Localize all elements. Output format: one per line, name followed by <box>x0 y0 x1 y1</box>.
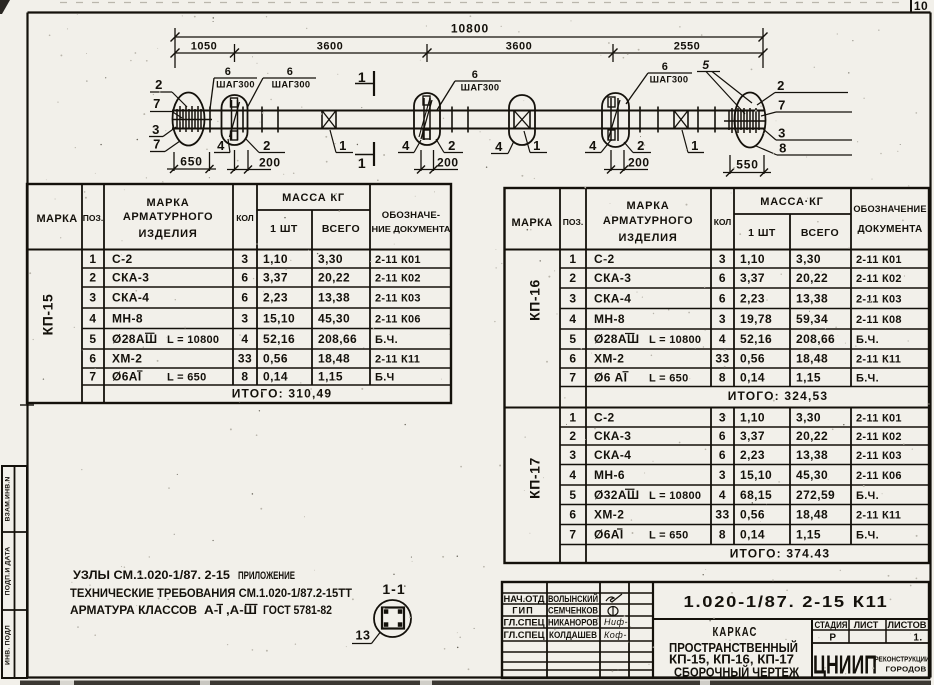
svg-text:ОБОЗНАЧЕ-: ОБОЗНАЧЕ- <box>382 210 441 221</box>
svg-text:0,56: 0,56 <box>740 352 765 366</box>
svg-text:1 ШТ: 1 ШТ <box>748 227 776 239</box>
svg-text:3600: 3600 <box>506 41 532 53</box>
svg-text:13,38: 13,38 <box>796 448 828 462</box>
svg-text:2: 2 <box>569 271 576 285</box>
svg-text:2-11 К11: 2-11 К11 <box>856 510 901 522</box>
svg-text:ШАГ300: ШАГ300 <box>461 83 500 93</box>
svg-text:1: 1 <box>89 252 96 266</box>
svg-text:ИТОГО: 324,53: ИТОГО: 324,53 <box>728 389 829 403</box>
svg-text:7: 7 <box>569 370 576 384</box>
svg-text:ИТОГО: 374.43: ИТОГО: 374.43 <box>730 547 831 561</box>
svg-text:200: 200 <box>437 156 459 170</box>
svg-text:ПОЗ.: ПОЗ. <box>83 213 103 223</box>
svg-text:1-1: 1-1 <box>382 581 405 597</box>
svg-text:СЕМЧЕНКОВ: СЕМЧЕНКОВ <box>548 606 598 616</box>
svg-text:СКА-3: СКА-3 <box>594 429 631 443</box>
svg-text:L = 10800: L = 10800 <box>167 334 219 346</box>
svg-text:2-11 К03: 2-11 К03 <box>856 293 902 305</box>
svg-text:10800: 10800 <box>451 22 489 36</box>
svg-text:68,15: 68,15 <box>740 488 772 502</box>
svg-text:0,56: 0,56 <box>740 508 765 522</box>
svg-text:2: 2 <box>263 138 271 153</box>
svg-text:45,30: 45,30 <box>796 468 828 482</box>
svg-text:3: 3 <box>719 410 726 424</box>
svg-text:3: 3 <box>152 122 160 137</box>
svg-text:20,22: 20,22 <box>796 271 828 285</box>
svg-text:ЦНИИП: ЦНИИП <box>813 650 877 680</box>
svg-text:ГЛ.СПЕЦ: ГЛ.СПЕЦ <box>504 618 545 628</box>
svg-text:МН-8: МН-8 <box>594 312 625 326</box>
svg-text:L = 650: L = 650 <box>167 372 207 384</box>
svg-text:КП-17: КП-17 <box>527 457 543 499</box>
svg-text:6: 6 <box>569 352 576 366</box>
svg-text:1,10: 1,10 <box>263 252 288 266</box>
svg-text:С-2: С-2 <box>594 252 615 266</box>
svg-text:59,34: 59,34 <box>796 312 828 326</box>
svg-text:7: 7 <box>89 370 96 384</box>
svg-text:6: 6 <box>719 291 726 305</box>
svg-text:ГЛ.СПЕЦ: ГЛ.СПЕЦ <box>504 630 545 640</box>
svg-text:Коф-: Коф- <box>604 630 627 640</box>
svg-text:2-11 К06: 2-11 К06 <box>856 470 902 482</box>
svg-text:1: 1 <box>691 138 699 153</box>
svg-text:3: 3 <box>89 291 96 305</box>
svg-text:Р: Р <box>829 633 836 644</box>
svg-text:ВСЕГО: ВСЕГО <box>322 223 360 235</box>
svg-text:1050: 1050 <box>191 41 217 53</box>
svg-text:1: 1 <box>569 410 576 424</box>
svg-text:Б.Ч.: Б.Ч. <box>856 490 879 502</box>
svg-text:2-11 К03: 2-11 К03 <box>375 293 421 305</box>
svg-text:КОЛДАШЕВ: КОЛДАШЕВ <box>549 630 597 640</box>
svg-text:СКА-4: СКА-4 <box>594 291 631 305</box>
svg-text:8: 8 <box>241 370 248 384</box>
svg-text:3: 3 <box>719 312 726 326</box>
svg-text:272,59: 272,59 <box>796 488 835 502</box>
svg-text:МАССА·КГ: МАССА·КГ <box>760 196 823 208</box>
svg-text:6: 6 <box>569 508 576 522</box>
svg-text:1: 1 <box>358 69 366 85</box>
svg-text:2-11 К01: 2-11 К01 <box>375 254 421 266</box>
svg-text:1.020-1/87. 2-15 К11: 1.020-1/87. 2-15 К11 <box>684 594 889 611</box>
svg-text:5: 5 <box>89 332 96 346</box>
svg-text:L = 650: L = 650 <box>649 372 689 384</box>
svg-text:4: 4 <box>495 139 503 154</box>
svg-text:ИНВ. ПОДЛ: ИНВ. ПОДЛ <box>5 625 12 665</box>
svg-text:3,37: 3,37 <box>740 429 765 443</box>
svg-text:2: 2 <box>155 77 163 92</box>
svg-text:2,23: 2,23 <box>740 448 765 462</box>
svg-text:200: 200 <box>628 156 650 170</box>
svg-text:ПОЗ.: ПОЗ. <box>563 217 583 227</box>
svg-text:4: 4 <box>719 488 726 502</box>
svg-text:3: 3 <box>778 126 786 141</box>
svg-text:2-11 К02: 2-11 К02 <box>856 431 902 443</box>
svg-text:МН-6: МН-6 <box>594 468 625 482</box>
svg-text:СБОРОЧНЫЙ ЧЕРТЕЖ: СБОРОЧНЫЙ ЧЕРТЕЖ <box>674 665 799 680</box>
svg-text:6: 6 <box>241 291 248 305</box>
svg-text:ТЕХНИЧЕСКИЕ ТРЕБОВАНИЯ СМ.1.02: ТЕХНИЧЕСКИЕ ТРЕБОВАНИЯ СМ.1.020-1/87.2-1… <box>70 586 353 600</box>
svg-text:1,15: 1,15 <box>318 370 343 384</box>
svg-text:19,78: 19,78 <box>740 312 772 326</box>
svg-text:АРМАТУРНОГО: АРМАТУРНОГО <box>603 215 693 227</box>
svg-text:15,10: 15,10 <box>263 311 295 325</box>
svg-text:52,16: 52,16 <box>740 332 772 346</box>
svg-text:КАРКАС: КАРКАС <box>713 624 758 639</box>
svg-text:18,48: 18,48 <box>796 508 828 522</box>
svg-text:20,22: 20,22 <box>318 271 350 285</box>
svg-text:ХМ-2: ХМ-2 <box>594 352 624 366</box>
svg-text:1: 1 <box>339 138 347 153</box>
svg-text:МАРКА: МАРКА <box>626 200 669 212</box>
svg-text:ХМ-2: ХМ-2 <box>112 352 142 366</box>
svg-text:РЕКОНСТРУКЦИИ: РЕКОНСТРУКЦИИ <box>875 657 930 664</box>
svg-text:ЛИСТОВ: ЛИСТОВ <box>888 620 928 630</box>
svg-text:2-11 К03: 2-11 К03 <box>856 450 902 462</box>
svg-text:2-11 К01: 2-11 К01 <box>856 254 902 266</box>
svg-text:L = 10800: L = 10800 <box>649 490 701 502</box>
svg-text:13,38: 13,38 <box>318 291 350 305</box>
svg-text:2-11 К11: 2-11 К11 <box>375 354 420 366</box>
svg-text:1: 1 <box>533 138 541 153</box>
svg-text:ГИП: ГИП <box>512 606 533 616</box>
svg-text:6: 6 <box>241 271 248 285</box>
svg-text:1,10: 1,10 <box>740 252 765 266</box>
svg-text:1.: 1. <box>913 633 922 644</box>
svg-text:2: 2 <box>89 271 96 285</box>
svg-text:3600: 3600 <box>317 41 343 53</box>
svg-text:6: 6 <box>225 66 232 78</box>
svg-text:2-11 К06: 2-11 К06 <box>375 313 421 325</box>
svg-text:200: 200 <box>259 156 281 170</box>
svg-text:ПОДП.И ДАТА: ПОДП.И ДАТА <box>5 547 12 596</box>
svg-text:1 ШТ: 1 ШТ <box>270 223 298 235</box>
svg-text:0,14: 0,14 <box>263 370 288 384</box>
svg-text:2-11 К08: 2-11 К08 <box>856 314 902 326</box>
svg-text:КП-15: КП-15 <box>40 294 56 336</box>
svg-text:Б.Ч.: Б.Ч. <box>375 334 398 346</box>
svg-text:ИЗДЕЛИЯ: ИЗДЕЛИЯ <box>618 232 677 244</box>
svg-text:ШАГ300: ШАГ300 <box>650 75 689 85</box>
svg-text:Ниф-: Ниф- <box>604 617 628 627</box>
svg-text:НИКАНОРОВ: НИКАНОРОВ <box>548 618 598 628</box>
svg-text:Б.Ч.: Б.Ч. <box>856 530 879 542</box>
svg-text:18,48: 18,48 <box>318 352 350 366</box>
svg-text:СКА-3: СКА-3 <box>112 271 149 285</box>
svg-text:2: 2 <box>569 429 576 443</box>
svg-text:ШАГ300: ШАГ300 <box>272 80 311 90</box>
svg-text:4: 4 <box>569 468 576 482</box>
svg-text:НИЕ ДОКУМЕНТА: НИЕ ДОКУМЕНТА <box>372 224 451 234</box>
svg-text:С-2: С-2 <box>112 252 133 266</box>
svg-text:ИЗДЕЛИЯ: ИЗДЕЛИЯ <box>138 228 197 240</box>
svg-text:Б.Ч.: Б.Ч. <box>856 334 879 346</box>
svg-text:15,10: 15,10 <box>740 468 772 482</box>
svg-text:1: 1 <box>569 252 576 266</box>
svg-text:ШАГ300: ШАГ300 <box>216 80 255 90</box>
svg-text:3,37: 3,37 <box>263 271 288 285</box>
svg-text:2-11 К02: 2-11 К02 <box>856 273 902 285</box>
svg-text:4: 4 <box>719 332 726 346</box>
svg-text:208,66: 208,66 <box>796 332 835 346</box>
svg-text:1,15: 1,15 <box>796 528 821 542</box>
svg-text:СТАДИЯ: СТАДИЯ <box>815 620 848 630</box>
svg-text:3,37: 3,37 <box>740 271 765 285</box>
svg-text:7: 7 <box>569 528 576 542</box>
svg-text:7: 7 <box>153 137 161 152</box>
svg-text:ДОКУМЕНТА: ДОКУМЕНТА <box>857 224 922 235</box>
svg-text:13,38: 13,38 <box>796 291 828 305</box>
svg-text:1: 1 <box>358 155 366 171</box>
svg-text:7: 7 <box>153 96 161 111</box>
svg-text:8: 8 <box>719 528 726 542</box>
svg-text:4: 4 <box>569 312 576 326</box>
svg-text:СКА-4: СКА-4 <box>594 448 631 462</box>
svg-text:ВОЛЫНСКИЙ: ВОЛЫНСКИЙ <box>548 593 598 604</box>
svg-text:2: 2 <box>777 78 785 93</box>
svg-text:33: 33 <box>715 508 729 522</box>
svg-text:3: 3 <box>241 252 248 266</box>
svg-text:4: 4 <box>89 311 96 325</box>
svg-text:3,30: 3,30 <box>318 252 343 266</box>
svg-text:2-11 К11: 2-11 К11 <box>856 354 901 366</box>
svg-text:ИТОГО: 310,49: ИТОГО: 310,49 <box>232 387 333 401</box>
svg-text:4: 4 <box>217 138 225 153</box>
svg-text:5: 5 <box>702 58 709 72</box>
svg-text:3: 3 <box>719 468 726 482</box>
svg-text:АРМАТУРА КЛАССОВ: АРМАТУРА КЛАССОВ <box>70 603 197 617</box>
svg-text:ПРИЛОЖЕНИЕ: ПРИЛОЖЕНИЕ <box>238 570 295 582</box>
svg-text:L = 650: L = 650 <box>649 530 689 542</box>
svg-text:ВСЕГО: ВСЕГО <box>801 227 839 239</box>
svg-text:2,23: 2,23 <box>263 291 288 305</box>
svg-text:3,30: 3,30 <box>796 252 821 266</box>
svg-text:33: 33 <box>238 352 252 366</box>
svg-text:КОЛ: КОЛ <box>714 217 732 227</box>
svg-text:0,56: 0,56 <box>263 352 288 366</box>
svg-text:6: 6 <box>719 448 726 462</box>
svg-text:0,14: 0,14 <box>740 370 765 384</box>
svg-text:6: 6 <box>719 429 726 443</box>
svg-text:ГОРОДОВ: ГОРОДОВ <box>886 665 927 674</box>
svg-text:2-11 К01: 2-11 К01 <box>856 412 902 424</box>
svg-text:8: 8 <box>719 370 726 384</box>
svg-text:КОЛ: КОЛ <box>236 213 254 223</box>
svg-text:5: 5 <box>569 332 576 346</box>
svg-text:13: 13 <box>356 629 371 643</box>
svg-text:2,23: 2,23 <box>740 291 765 305</box>
svg-text:L = 10800: L = 10800 <box>649 334 701 346</box>
svg-text:УЗЛЫ СМ.1.020-1/87. 2-15: УЗЛЫ СМ.1.020-1/87. 2-15 <box>73 568 230 582</box>
svg-text:2: 2 <box>448 138 456 153</box>
svg-text:1,10: 1,10 <box>740 410 765 424</box>
svg-text:СКА-3: СКА-3 <box>594 271 631 285</box>
svg-text:1,15: 1,15 <box>796 370 821 384</box>
svg-text:ОБОЗНАЧЕНИЕ: ОБОЗНАЧЕНИЕ <box>853 204 926 214</box>
svg-text:АРМАТУРНОГО: АРМАТУРНОГО <box>123 211 213 223</box>
svg-text:3: 3 <box>569 291 576 305</box>
svg-text:6: 6 <box>89 352 96 366</box>
svg-text:ЛИСТ: ЛИСТ <box>854 620 879 630</box>
svg-text:650: 650 <box>180 155 202 169</box>
svg-text:СКА-4: СКА-4 <box>112 291 149 305</box>
svg-text:6: 6 <box>472 69 479 81</box>
svg-text:4: 4 <box>402 138 410 153</box>
svg-text:ХМ-2: ХМ-2 <box>594 508 624 522</box>
svg-text:МН-8: МН-8 <box>112 311 143 325</box>
svg-text:МАРКА: МАРКА <box>511 217 552 229</box>
svg-text:3,30: 3,30 <box>796 410 821 424</box>
svg-text:8: 8 <box>779 141 787 156</box>
svg-text:КП-16: КП-16 <box>527 279 543 321</box>
svg-text:20,22: 20,22 <box>796 429 828 443</box>
svg-text:52,16: 52,16 <box>263 332 295 346</box>
svg-text:МАРКА: МАРКА <box>146 197 189 209</box>
svg-text:3: 3 <box>569 448 576 462</box>
svg-text:6: 6 <box>662 61 669 73</box>
svg-text:33: 33 <box>715 352 729 366</box>
svg-text:7: 7 <box>778 98 786 113</box>
svg-text:Ø6 АI: Ø6 АI <box>594 370 627 384</box>
svg-text:3: 3 <box>719 252 726 266</box>
svg-text:10: 10 <box>914 0 928 13</box>
svg-text:3: 3 <box>241 311 248 325</box>
svg-text:С-2: С-2 <box>594 410 615 424</box>
svg-text:45,30: 45,30 <box>318 311 350 325</box>
svg-text:208,66: 208,66 <box>318 332 357 346</box>
svg-text:2550: 2550 <box>674 41 700 53</box>
svg-text:ВЗАМ.ИНВ.N: ВЗАМ.ИНВ.N <box>5 476 12 521</box>
svg-text:Б.Ч: Б.Ч <box>375 372 395 384</box>
svg-text:18,48: 18,48 <box>796 352 828 366</box>
svg-text:4: 4 <box>589 138 597 153</box>
svg-text:МАРКА: МАРКА <box>36 213 77 225</box>
svg-text:6: 6 <box>287 66 294 78</box>
svg-text:ГОСТ 5781-82: ГОСТ 5781-82 <box>263 603 332 617</box>
svg-text:Б.Ч.: Б.Ч. <box>856 372 879 384</box>
svg-text:550: 550 <box>736 158 758 172</box>
svg-text:6: 6 <box>719 271 726 285</box>
svg-text:0,14: 0,14 <box>740 528 765 542</box>
svg-text:2-11 К02: 2-11 К02 <box>375 273 421 285</box>
svg-text:5: 5 <box>569 488 576 502</box>
svg-text:4: 4 <box>241 332 248 346</box>
